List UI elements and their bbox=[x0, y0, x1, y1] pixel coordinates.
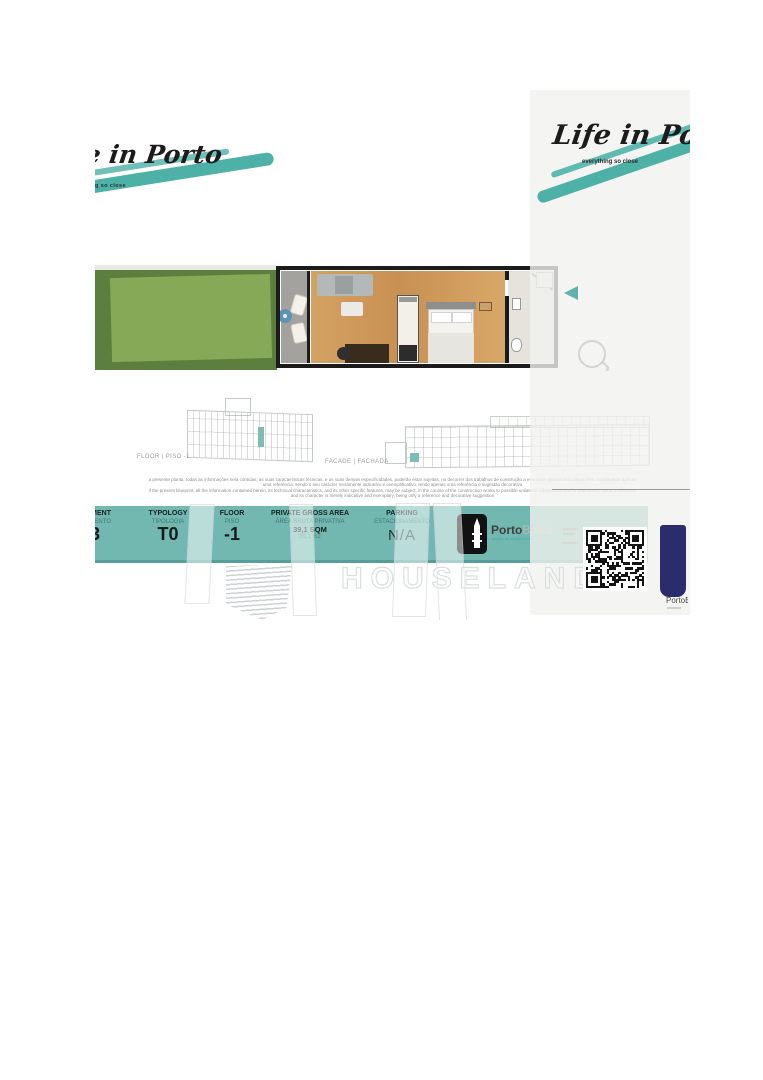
brand-tagline: everything so close bbox=[582, 159, 638, 165]
brand-name: Life in Porto bbox=[95, 140, 224, 169]
zoom-icon-dot bbox=[606, 368, 609, 371]
page: { "brand": { "name": "Life in Porto", "t… bbox=[0, 0, 763, 1080]
apartment-value: 3 bbox=[95, 524, 100, 545]
property-sheet: Life in Porto everything so close bbox=[95, 90, 690, 620]
watermark-shape bbox=[289, 504, 317, 616]
facade-drawing-highlight bbox=[410, 453, 419, 462]
contact-text-faint bbox=[563, 533, 575, 535]
floor-drawing-highlight bbox=[258, 427, 264, 447]
zoom-icon[interactable] bbox=[578, 340, 606, 368]
panel-divider bbox=[552, 489, 690, 490]
previous-arrow-icon[interactable] bbox=[564, 286, 578, 300]
floor-drawing bbox=[187, 410, 313, 462]
portobaixa-word-dark: Porto bbox=[491, 523, 522, 537]
watermark-shape bbox=[392, 503, 430, 617]
floor-drawing-label: FLOOR | PISO -1 bbox=[137, 454, 190, 460]
portobaixa-subtitle: gestão de investimentos bbox=[492, 537, 534, 541]
partner-logo-icon bbox=[660, 525, 686, 597]
apartment-label-en: APARTMENT bbox=[95, 510, 111, 517]
watermark-text: HOUSELAND bbox=[341, 562, 603, 596]
garden-wall bbox=[95, 265, 277, 270]
contact-text-faint bbox=[563, 528, 577, 530]
partner-logo-subtitle-faint bbox=[667, 607, 681, 609]
qr-code bbox=[583, 527, 647, 591]
apartment-outline bbox=[276, 266, 558, 368]
brand-name: Life in Porto bbox=[551, 120, 690, 151]
watermark-shape bbox=[184, 504, 214, 604]
brand-tagline: everything so close bbox=[95, 183, 126, 189]
lawn bbox=[110, 274, 272, 362]
qr-code-grid bbox=[586, 530, 644, 588]
facade-drawing-label: FACADE | FACHADA bbox=[325, 459, 389, 465]
partner-logo-name: PortoBaixa bbox=[666, 596, 688, 605]
watermark-shield bbox=[226, 564, 292, 620]
contact-text-faint bbox=[561, 542, 577, 544]
